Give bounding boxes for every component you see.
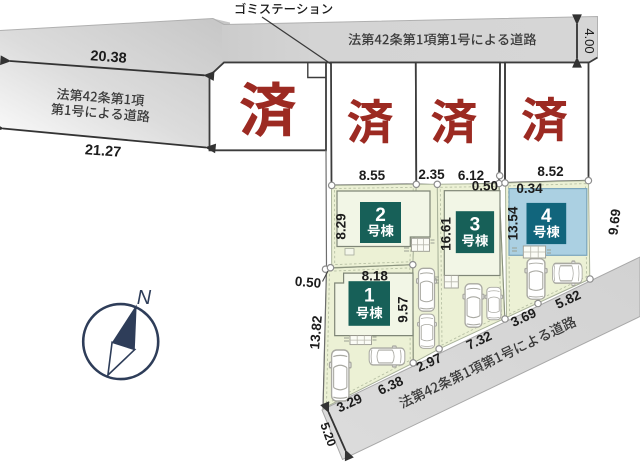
- svg-text:8.29: 8.29: [334, 213, 349, 239]
- svg-text:4.00: 4.00: [582, 28, 597, 53]
- svg-text:8.52: 8.52: [537, 164, 563, 179]
- svg-text:9.69: 9.69: [605, 208, 623, 236]
- svg-text:21.27: 21.27: [84, 142, 121, 160]
- svg-text:20.38: 20.38: [90, 48, 127, 66]
- svg-text:0.50: 0.50: [294, 274, 321, 291]
- svg-text:13.54: 13.54: [506, 206, 521, 240]
- svg-text:8.55: 8.55: [359, 168, 386, 183]
- svg-text:N: N: [137, 287, 152, 309]
- svg-text:4: 4: [541, 206, 552, 227]
- svg-text:8.18: 8.18: [362, 268, 389, 283]
- svg-text:9.57: 9.57: [396, 296, 411, 322]
- svg-text:0.34: 0.34: [516, 181, 543, 196]
- svg-text:16.61: 16.61: [439, 217, 454, 251]
- svg-text:2.35: 2.35: [418, 167, 445, 182]
- svg-text:1: 1: [364, 285, 375, 306]
- svg-text:13.82: 13.82: [307, 315, 325, 350]
- svg-text:0.50: 0.50: [472, 179, 498, 194]
- svg-text:2: 2: [375, 205, 386, 226]
- svg-text:3: 3: [470, 215, 481, 236]
